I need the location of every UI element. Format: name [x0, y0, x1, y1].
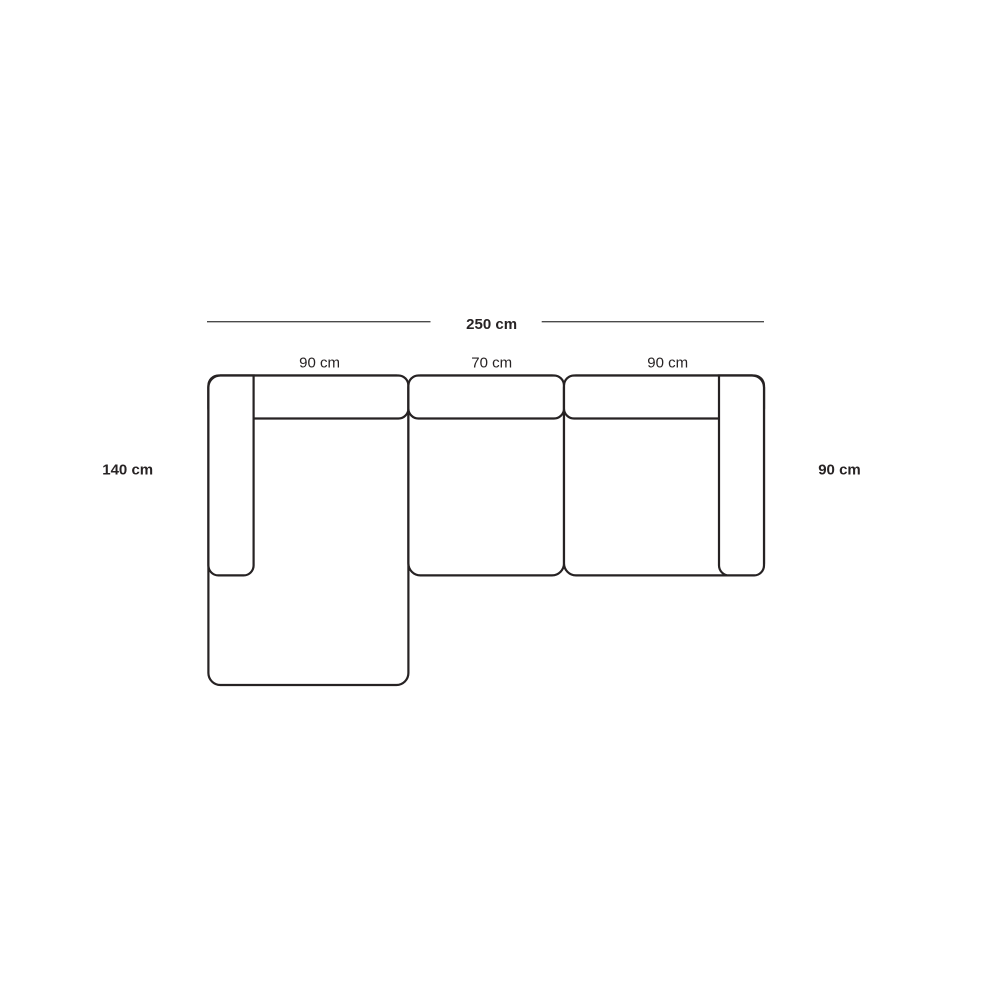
svg-text:90 cm: 90 cm: [818, 462, 861, 479]
svg-text:140 cm: 140 cm: [102, 462, 153, 479]
svg-text:70 cm: 70 cm: [471, 355, 512, 372]
svg-text:250 cm: 250 cm: [466, 316, 517, 333]
svg-text:90 cm: 90 cm: [299, 355, 340, 372]
svg-text:90 cm: 90 cm: [647, 355, 688, 372]
